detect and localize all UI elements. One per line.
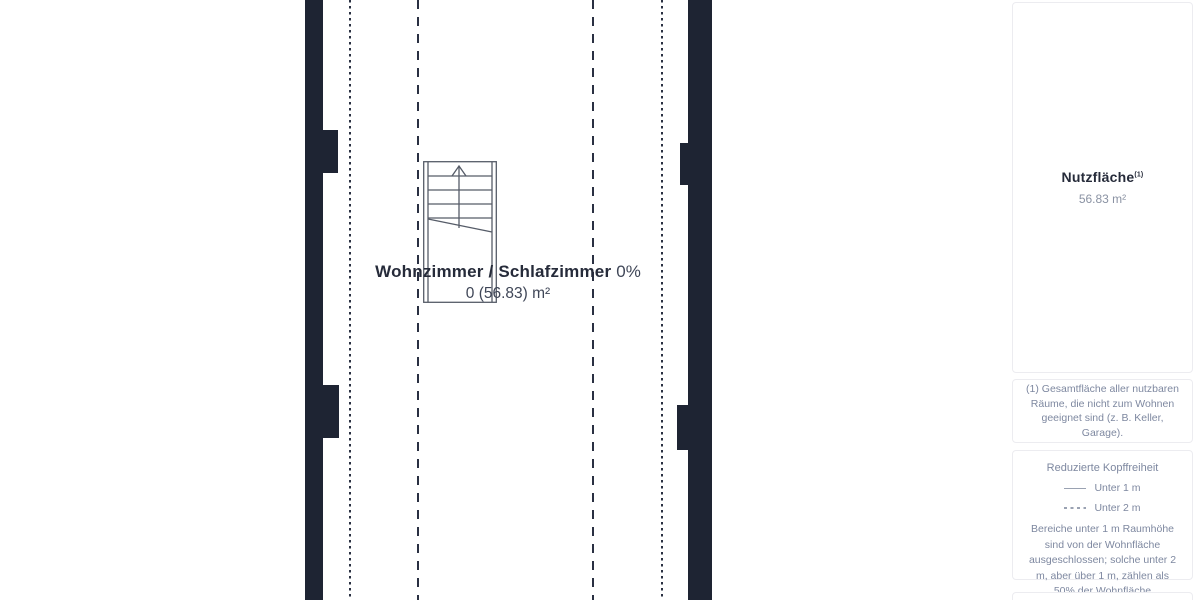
usable-area-card: Nutzfläche(1) 56.83 m² <box>1012 2 1193 373</box>
truncated-card <box>1012 592 1193 600</box>
room-label[interactable]: Wohnzimmer / Schlafzimmer0% 0 (56.83) m² <box>358 261 658 304</box>
legend-title: Reduzierte Kopffreiheit <box>1047 462 1159 474</box>
dashed-line-sample-icon <box>1064 507 1086 509</box>
headroom-under-1m-line-left <box>349 0 351 600</box>
right-wall-pier-lower <box>677 405 688 450</box>
right-wall <box>688 0 712 600</box>
solid-line-sample-icon <box>1064 488 1086 489</box>
usable-area-value: 56.83 m² <box>1079 192 1126 206</box>
room-percent: 0% <box>616 262 641 281</box>
usable-area-title: Nutzfläche(1) <box>1062 169 1144 185</box>
legend-item-under-2m: Unter 2 m <box>1064 502 1140 514</box>
footnote-card: (1) Gesamtfläche aller nutzbaren Räume, … <box>1012 379 1193 443</box>
legend-item-under-1m: Unter 1 m <box>1064 482 1140 494</box>
room-name: Wohnzimmer / Schlafzimmer <box>375 262 611 281</box>
legend-card: Reduzierte Kopffreiheit Unter 1 m Unter … <box>1012 450 1193 580</box>
legend-item-label: Unter 1 m <box>1094 482 1140 494</box>
footnote-text: (1) Gesamtfläche aller nutzbaren Räume, … <box>1013 382 1192 440</box>
left-wall-pier-upper <box>323 130 338 173</box>
legend-note: Bereiche unter 1 m Raumhöhe sind von der… <box>1023 522 1182 600</box>
right-wall-pier-upper <box>680 143 688 185</box>
footnote-ref: (1) <box>1134 171 1143 178</box>
headroom-under-1m-line-right <box>661 0 663 600</box>
floor-plan-viewer: Wohnzimmer / Schlafzimmer0% 0 (56.83) m²… <box>0 0 1200 600</box>
room-area: 0 (56.83) m² <box>358 284 658 304</box>
left-wall <box>305 0 323 600</box>
left-wall-pier-lower <box>323 385 339 438</box>
legend-item-label: Unter 2 m <box>1094 502 1140 514</box>
